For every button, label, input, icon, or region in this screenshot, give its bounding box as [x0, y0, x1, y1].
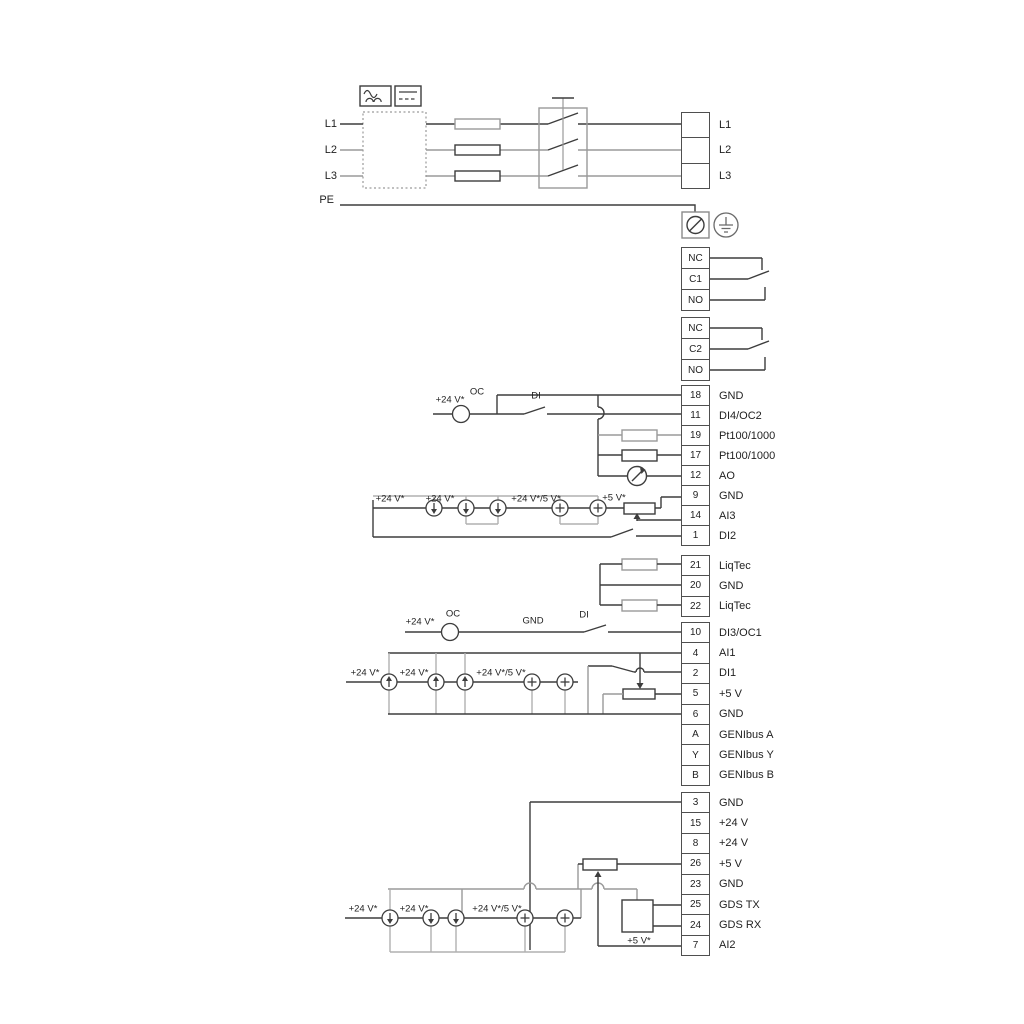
terminal-row: 10 DI3/OC1: [681, 622, 774, 643]
terminal-number: 2: [681, 663, 710, 684]
terminal-row: 25 GDS TX: [681, 894, 761, 915]
annotation-plus24v-5v: +24 V*/5 V*: [472, 904, 521, 915]
terminal-row: 1 DI2: [681, 525, 775, 546]
terminal-number: 11: [681, 405, 710, 426]
dc-symbol-icon: [395, 86, 421, 106]
terminal-label: GDS TX: [719, 899, 760, 911]
label-l1: L1: [325, 118, 337, 130]
pt100-sensor-1: [598, 430, 681, 441]
terminal-number: 22: [681, 596, 710, 617]
terminal-label: GENIbus A: [719, 729, 773, 741]
annotation-oc: OC: [446, 609, 460, 620]
terminal-row: L3: [681, 163, 731, 189]
terminal-label: GND: [719, 490, 743, 502]
annotation-plus24v: +24 V*: [400, 668, 429, 679]
line-l3: [340, 165, 681, 181]
main-switch: [539, 98, 587, 188]
filter-box: [363, 112, 426, 188]
io-section-a: [373, 395, 681, 537]
mains-circuit: [340, 86, 738, 238]
label-pe: PE: [319, 194, 334, 206]
terminal-row: 9 GND: [681, 485, 775, 506]
terminal-row: 5 +5 V: [681, 683, 774, 704]
terminal-label: GND: [719, 708, 743, 720]
terminal-number: 12: [681, 465, 710, 486]
terminal-label: L1: [719, 119, 731, 131]
terminal-label: GENIbus B: [719, 769, 774, 781]
annotation-oc: OC: [470, 387, 484, 398]
terminal-number: 3: [681, 792, 710, 813]
pt100-sensor-2: [598, 450, 681, 461]
annotation-plus24v: +24 V*: [436, 395, 465, 406]
terminal-number: 6: [681, 704, 710, 725]
terminal-cell: [681, 163, 710, 189]
relay1-terminal-block: NC C1 NO: [681, 247, 710, 311]
earth-ground-icon: [714, 213, 738, 237]
terminal-number: 15: [681, 812, 710, 833]
terminal-label: GND: [719, 580, 743, 592]
terminal-row: 14 AI3: [681, 505, 775, 526]
terminal-number: A: [681, 724, 710, 745]
terminal-number: 9: [681, 485, 710, 506]
terminal-row: 4 AI1: [681, 642, 774, 663]
terminal-number: 17: [681, 445, 710, 466]
pe-line: [340, 205, 695, 212]
annotation-plus24v: +24 V*: [426, 494, 455, 505]
terminal-number: 8: [681, 833, 710, 854]
terminal-label: GDS RX: [719, 919, 761, 931]
annotation-plus24v: +24 V*: [349, 904, 378, 915]
relay2-terminal-block: NC C2 NO: [681, 317, 710, 381]
annotation-plus5v: +5 V*: [602, 493, 626, 504]
terminal-number: B: [681, 765, 710, 786]
terminal-row: 2 DI1: [681, 663, 774, 684]
terminal-number: 26: [681, 853, 710, 874]
annotation-plus24v: +24 V*: [400, 904, 429, 915]
terminal-label: Pt100/1000: [719, 430, 775, 442]
terminal-row: C1: [681, 268, 710, 290]
terminal-row: 15 +24 V: [681, 812, 761, 833]
terminal-number: 25: [681, 894, 710, 915]
terminal-row: NO: [681, 289, 710, 311]
liqtec-section: [600, 559, 681, 611]
schematic-linework: [0, 0, 1024, 1024]
terminal-label: GND: [719, 797, 743, 809]
terminal-row: NC: [681, 317, 710, 339]
gds-sensor-box: [622, 900, 681, 932]
wiring-diagram: L1 L2 L3 PE L1 L2 L3 NC C1 NO NC C2 NO 1…: [0, 0, 1024, 1024]
annotation-plus24v: +24 V*: [376, 494, 405, 505]
terminal-row: NO: [681, 359, 710, 381]
annotation-plus5v: +5 V*: [627, 936, 651, 947]
io-terminal-block-d: 3 GND 15 +24 V 8 +24 V 26 +5 V 23 GND 25…: [681, 792, 761, 956]
io-terminal-block-c: 10 DI3/OC1 4 AI1 2 DI1 5 +5 V 6 GND A GE…: [681, 622, 774, 786]
potentiometer-ai1: [603, 689, 681, 714]
annotation-plus24v: +24 V*: [351, 668, 380, 679]
terminal-label: +24 V: [719, 837, 748, 849]
mains-output-terminal-block: L1 L2 L3: [681, 112, 731, 189]
terminal-label: DI3/OC1: [719, 627, 762, 639]
terminal-cell: NC: [681, 317, 710, 339]
label-l2: L2: [325, 144, 337, 156]
terminal-row: A GENIbus A: [681, 724, 774, 745]
screw-terminal-icon: [682, 212, 709, 238]
bottom-section: [345, 802, 681, 952]
terminal-label: +5 V: [719, 688, 742, 700]
terminal-row: 22 LiqTec: [681, 596, 751, 617]
terminal-label: AI2: [719, 939, 736, 951]
terminal-row: B GENIbus B: [681, 765, 774, 786]
potentiometer-ai3: [624, 497, 681, 521]
terminal-label: L2: [719, 144, 731, 156]
annotation-plus24v-5v: +24 V*/5 V*: [476, 668, 525, 679]
terminal-number: 4: [681, 642, 710, 663]
terminal-row: 20 GND: [681, 575, 751, 596]
terminal-row: 21 LiqTec: [681, 555, 751, 576]
annotation-plus24v-5v: +24 V*/5 V*: [511, 494, 560, 505]
terminal-label: DI4/OC2: [719, 410, 762, 422]
relay2-contact: [710, 328, 769, 370]
terminal-row: C2: [681, 338, 710, 360]
terminal-number: 10: [681, 622, 710, 643]
liqtec-sensor-2: [622, 600, 657, 611]
line-l2: [340, 139, 681, 155]
terminal-number: 21: [681, 555, 710, 576]
annotation-di: DI: [579, 610, 589, 621]
annotation-plus24v: +24 V*: [406, 617, 435, 628]
terminal-cell: NO: [681, 359, 710, 381]
terminal-number: Y: [681, 744, 710, 765]
terminal-label: GND: [719, 390, 743, 402]
liqtec-terminal-block: 21 LiqTec 20 GND 22 LiqTec: [681, 555, 751, 617]
terminal-label: +5 V: [719, 858, 742, 870]
line-l1: [340, 113, 681, 129]
io-terminal-block-a: 18 GND 11 DI4/OC2 19 Pt100/1000 17 Pt100…: [681, 385, 775, 546]
terminal-label: L3: [719, 170, 731, 182]
terminal-label: DI1: [719, 667, 736, 679]
ac-symbol-icon: [360, 86, 391, 106]
terminal-number: 7: [681, 935, 710, 956]
terminal-row: Y GENIbus Y: [681, 744, 774, 765]
terminal-row: L2: [681, 137, 731, 163]
terminal-number: 5: [681, 683, 710, 704]
terminal-number: 18: [681, 385, 710, 406]
terminal-label: LiqTec: [719, 560, 751, 572]
terminal-label: AI1: [719, 647, 736, 659]
analog-output-meter-icon: [598, 467, 681, 486]
terminal-number: 1: [681, 525, 710, 546]
terminal-cell: NO: [681, 289, 710, 311]
terminal-cell: C1: [681, 268, 710, 290]
terminal-cell: [681, 112, 710, 138]
terminal-row: 7 AI2: [681, 935, 761, 956]
terminal-number: 19: [681, 425, 710, 446]
potentiometer-gds: [578, 859, 681, 946]
terminal-row: NC: [681, 247, 710, 269]
terminal-label: AO: [719, 470, 735, 482]
terminal-cell: NC: [681, 247, 710, 269]
terminal-label: LiqTec: [719, 600, 751, 612]
annotation-gnd: GND: [522, 616, 543, 627]
terminal-label: +24 V: [719, 817, 748, 829]
terminal-label: AI3: [719, 510, 736, 522]
terminal-row: 3 GND: [681, 792, 761, 813]
terminal-row: L1: [681, 112, 731, 138]
terminal-label: Pt100/1000: [719, 450, 775, 462]
terminal-number: 20: [681, 575, 710, 596]
terminal-row: 18 GND: [681, 385, 775, 406]
annotation-di: DI: [531, 391, 541, 402]
terminal-number: 24: [681, 914, 710, 935]
terminal-row: 19 Pt100/1000: [681, 425, 775, 446]
terminal-row: 11 DI4/OC2: [681, 405, 775, 426]
terminal-row: 17 Pt100/1000: [681, 445, 775, 466]
terminal-row: 26 +5 V: [681, 853, 761, 874]
terminal-row: 12 AO: [681, 465, 775, 486]
terminal-label: GENIbus Y: [719, 749, 774, 761]
terminal-cell: [681, 137, 710, 163]
terminal-label: GND: [719, 878, 743, 890]
terminal-row: 23 GND: [681, 874, 761, 895]
label-l3: L3: [325, 170, 337, 182]
terminal-cell: C2: [681, 338, 710, 360]
relay1-contact: [710, 258, 769, 300]
terminal-number: 23: [681, 874, 710, 895]
terminal-row: 6 GND: [681, 704, 774, 725]
liqtec-sensor-1: [622, 559, 657, 570]
terminal-row: 8 +24 V: [681, 833, 761, 854]
terminal-number: 14: [681, 505, 710, 526]
terminal-label: DI2: [719, 530, 736, 542]
terminal-row: 24 GDS RX: [681, 914, 761, 935]
